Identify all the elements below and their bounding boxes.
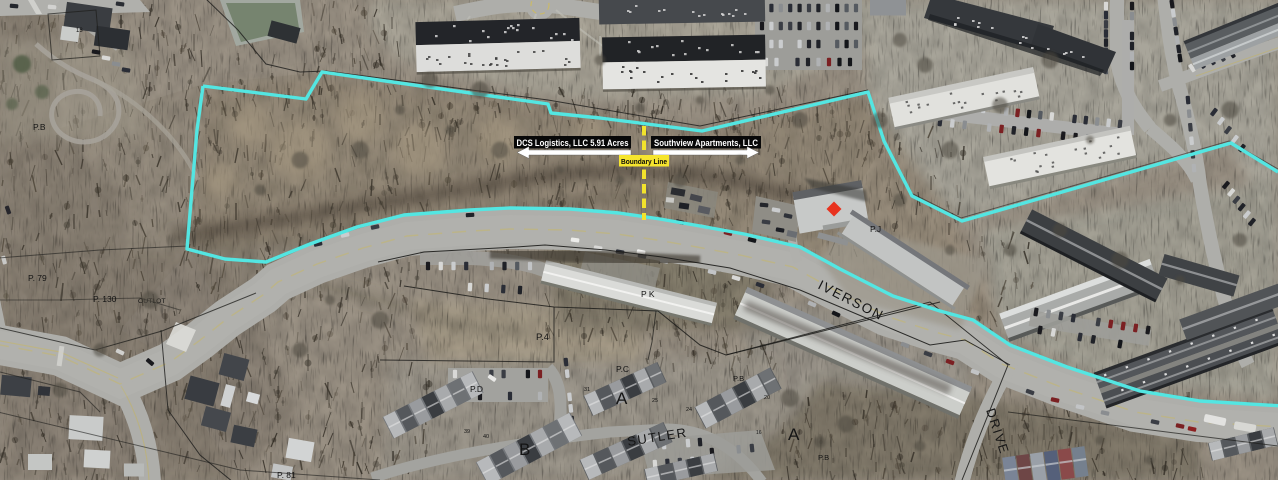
svg-text:P.B: P.B xyxy=(733,374,744,383)
svg-text:16: 16 xyxy=(756,430,762,436)
svg-text:20: 20 xyxy=(764,395,770,401)
svg-text:DCS Logistics, LLC 5.91 Acres: DCS Logistics, LLC 5.91 Acres xyxy=(517,138,629,148)
svg-text:P.B: P.B xyxy=(33,122,46,132)
svg-text:B: B xyxy=(519,440,530,459)
svg-text:39: 39 xyxy=(464,429,470,435)
svg-text:25: 25 xyxy=(652,398,658,404)
svg-text:24: 24 xyxy=(686,407,692,413)
svg-text:Southview Apartments, LLC: Southview Apartments, LLC xyxy=(654,138,758,148)
svg-text:P.D: P.D xyxy=(470,384,483,394)
svg-text:P.C: P.C xyxy=(616,364,629,374)
svg-text:P K: P K xyxy=(641,289,655,299)
svg-text:P.B: P.B xyxy=(818,453,829,462)
svg-text:31: 31 xyxy=(584,387,590,393)
svg-text:P.J: P.J xyxy=(870,224,881,234)
svg-text:P. 130: P. 130 xyxy=(93,294,117,304)
svg-text:13: 13 xyxy=(76,28,83,34)
svg-text:P. 79: P. 79 xyxy=(28,273,47,283)
svg-text:P.4: P.4 xyxy=(536,332,549,343)
svg-text:P. 81: P. 81 xyxy=(277,470,296,480)
svg-text:Boundary Line: Boundary Line xyxy=(621,157,667,166)
svg-text:40: 40 xyxy=(483,434,489,440)
svg-text:A: A xyxy=(788,425,800,444)
svg-text:A: A xyxy=(616,389,628,408)
